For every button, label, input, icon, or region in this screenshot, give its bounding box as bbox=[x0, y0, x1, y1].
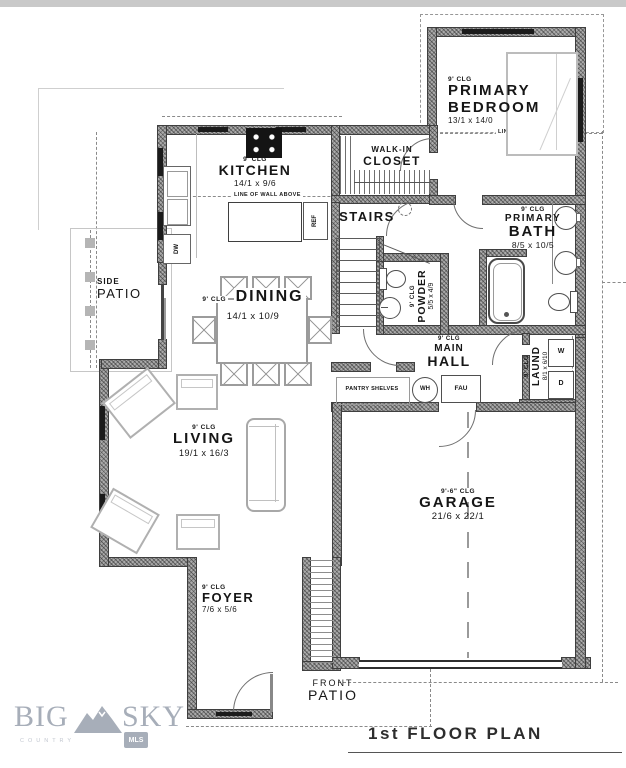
room-label-stairs: STAIRS bbox=[336, 210, 398, 225]
wall-segment bbox=[333, 558, 340, 666]
wall-segment bbox=[576, 338, 585, 668]
sink-basin bbox=[167, 171, 188, 197]
wall-segment bbox=[480, 250, 486, 334]
sink-faucet bbox=[576, 213, 581, 222]
roofline-dashed-right bbox=[602, 131, 603, 682]
wall-segment bbox=[159, 340, 166, 368]
water-heater-label: WH bbox=[412, 386, 438, 392]
logo-word-sky: SKY bbox=[122, 700, 185, 734]
room-label-garage: 9'-6" CLG GARAGE 21/6 x 22/1 bbox=[398, 488, 518, 523]
wall-segment bbox=[480, 250, 526, 256]
wall-segment bbox=[483, 196, 585, 204]
room-label-living: 9' CLG LIVING 19/1 x 16/3 bbox=[148, 424, 260, 458]
window bbox=[578, 78, 583, 142]
top-edge-band bbox=[0, 0, 626, 7]
logo-country-text: COUNTRY bbox=[20, 738, 75, 744]
dishwasher-label: DW bbox=[170, 236, 184, 262]
garage-door bbox=[359, 660, 562, 669]
wall-segment bbox=[332, 363, 370, 371]
bath-toilet-bowl bbox=[548, 293, 570, 311]
stove-cooktop bbox=[246, 128, 282, 158]
sink-basin bbox=[167, 199, 188, 225]
dining-chair bbox=[252, 362, 280, 386]
sink-faucet bbox=[576, 258, 581, 267]
window bbox=[100, 406, 105, 440]
wall-segment bbox=[332, 126, 339, 203]
room-label-main-hall: 9' CLG MAIN HALL bbox=[420, 336, 478, 370]
armchair-back bbox=[181, 519, 215, 528]
window bbox=[198, 127, 228, 132]
dining-chair bbox=[284, 362, 312, 386]
window bbox=[462, 29, 534, 34]
stair-up-hatch bbox=[310, 560, 333, 664]
armchair bbox=[176, 374, 218, 410]
mountain-icon bbox=[72, 704, 124, 734]
logo-word-big: BIG bbox=[14, 700, 69, 734]
armchair-back bbox=[110, 494, 153, 524]
deck-above-line-v bbox=[38, 88, 39, 230]
sheet-title: 1st FLOOR PLAN bbox=[368, 724, 622, 744]
wall-segment bbox=[102, 360, 166, 368]
dining-chair bbox=[220, 362, 248, 386]
room-label-primary-bedroom: 9' CLG PRIMARY BEDROOM 13/1 x 14/0 bbox=[448, 76, 574, 126]
driveway-dashed-line bbox=[338, 682, 618, 683]
stair-treads bbox=[336, 238, 380, 332]
wall-segment bbox=[100, 558, 196, 566]
fau-label: FAU bbox=[441, 385, 481, 392]
powder-sink-faucet bbox=[381, 307, 388, 308]
room-label-walkin-closet: WALK-IN CLOSET bbox=[352, 146, 432, 168]
wall-segment bbox=[428, 28, 436, 132]
floor-plan: LINE OF WALL ABOVE LINE OF WALL ABOVE bbox=[0, 0, 626, 768]
front-door-leaf bbox=[270, 674, 273, 712]
bath-toilet-tank bbox=[570, 291, 578, 313]
wall-segment bbox=[303, 558, 310, 666]
room-label-primary-bath: 9' CLG PRIMARY BATH 8/5 x 10/5 bbox=[490, 206, 576, 251]
wall-segment bbox=[333, 403, 341, 565]
wall-segment bbox=[477, 403, 585, 411]
garage-centerline bbox=[467, 412, 469, 658]
title-underline bbox=[348, 752, 622, 753]
closet-rod-line bbox=[354, 182, 432, 183]
front-patio-dashed-right bbox=[430, 664, 431, 727]
refrigerator-label: REF bbox=[308, 204, 322, 238]
room-label-foyer: 9' CLG FOYER 7/6 x 5/6 bbox=[202, 584, 288, 615]
powder-sink bbox=[379, 297, 401, 319]
logo-mls-badge: MLS bbox=[124, 732, 148, 748]
room-label-kitchen: 9' CLG KITCHEN 14/1 x 9/6 bbox=[200, 156, 310, 188]
room-label-dining: 9' CLG DINING 14/1 x 10/9 bbox=[194, 288, 312, 324]
room-label-laundry: 9' CLG LAUND 8/1 x 6/10 bbox=[519, 328, 555, 404]
armchair bbox=[176, 514, 220, 550]
wall-segment bbox=[332, 126, 436, 134]
kitchen-island bbox=[228, 202, 302, 242]
roofline-dashed-stub bbox=[602, 282, 626, 283]
kitchen-counter-edge bbox=[196, 134, 197, 258]
wall-segment bbox=[430, 196, 455, 204]
window bbox=[216, 712, 252, 716]
armchair-back bbox=[181, 379, 213, 388]
wall-segment bbox=[333, 658, 359, 668]
sliding-door-leaf bbox=[164, 298, 166, 340]
room-label-side-patio: SIDE PATIO bbox=[97, 278, 159, 302]
bath-sink bbox=[554, 251, 578, 275]
tub-drain bbox=[504, 312, 509, 317]
pantry-shelves-label: PANTRY SHELVES bbox=[336, 386, 408, 392]
line-of-wall-above-label: LINE OF WALL ABOVE bbox=[232, 192, 303, 198]
bigsky-logo: BIG SKY COUNTRY MLS bbox=[10, 694, 190, 750]
armchair-back bbox=[109, 374, 152, 411]
deck-above-line-h bbox=[38, 88, 284, 89]
sofa-back-line bbox=[275, 424, 276, 502]
kitchen-roof-ticks bbox=[162, 116, 342, 117]
room-label-powder: 9' CLG POWDER 5/5 x 4/9 bbox=[403, 260, 443, 332]
room-label-front-patio: FRONT PATIO bbox=[290, 678, 376, 704]
